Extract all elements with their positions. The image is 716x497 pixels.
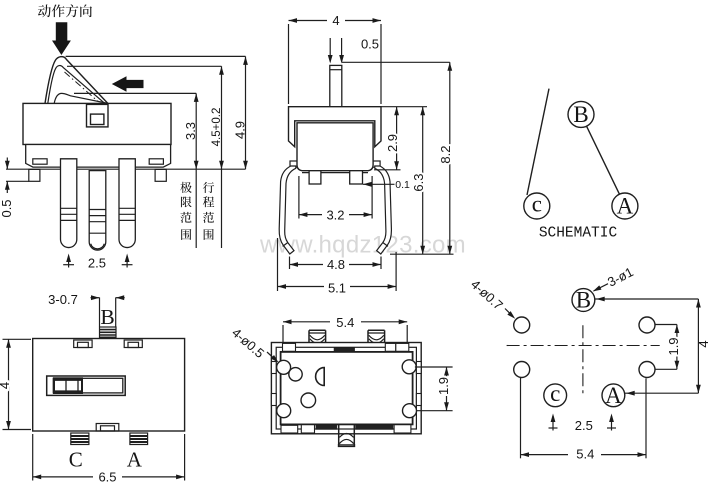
svg-text:C: C xyxy=(69,448,83,472)
svg-text:3.2: 3.2 xyxy=(326,207,344,222)
svg-text:3-0.7: 3-0.7 xyxy=(48,292,78,307)
svg-text:c: c xyxy=(550,381,560,406)
svg-text:A: A xyxy=(127,448,143,472)
svg-text:4: 4 xyxy=(0,382,12,389)
svg-text:4: 4 xyxy=(332,13,339,28)
svg-text:1.9: 1.9 xyxy=(666,337,681,355)
svg-text:c: c xyxy=(532,192,542,217)
svg-text:4.9: 4.9 xyxy=(233,121,248,139)
svg-text:1.9: 1.9 xyxy=(436,377,451,395)
svg-text:5.1: 5.1 xyxy=(328,280,346,295)
svg-text:B: B xyxy=(576,288,591,313)
svg-text:4: 4 xyxy=(696,340,711,347)
svg-text:0.1: 0.1 xyxy=(395,179,410,191)
svg-text:3.3: 3.3 xyxy=(183,122,198,140)
svg-text:5.4: 5.4 xyxy=(336,315,354,330)
svg-text:B: B xyxy=(100,305,114,329)
svg-text:2.5: 2.5 xyxy=(575,418,593,433)
svg-text:5.4: 5.4 xyxy=(576,446,594,461)
svg-text:B: B xyxy=(573,102,588,127)
svg-text:4.8: 4.8 xyxy=(327,257,345,272)
svg-text:4.5+0.2: 4.5+0.2 xyxy=(211,108,223,147)
svg-text:2.9: 2.9 xyxy=(385,134,400,152)
svg-text:A: A xyxy=(605,383,622,408)
svg-text:8.2: 8.2 xyxy=(438,146,453,164)
svg-text:6.5: 6.5 xyxy=(98,470,116,485)
svg-text:6.3: 6.3 xyxy=(411,174,426,192)
svg-text:A: A xyxy=(617,194,634,219)
svg-text:SCHEMATIC: SCHEMATIC xyxy=(539,225,618,241)
svg-text:0.5: 0.5 xyxy=(0,199,14,217)
svg-text:0.5: 0.5 xyxy=(361,37,379,52)
svg-text:2.5: 2.5 xyxy=(88,256,106,271)
